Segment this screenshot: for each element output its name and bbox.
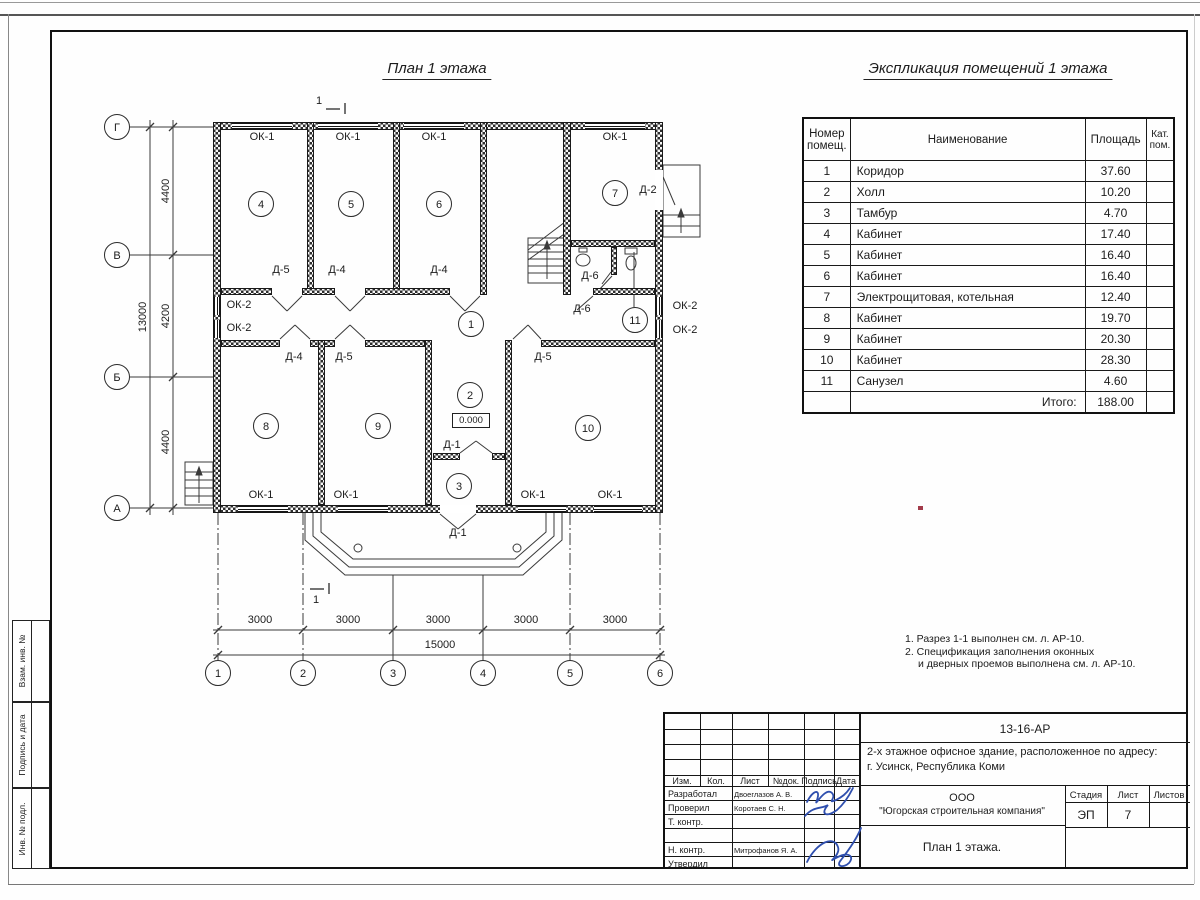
note-line-3: и дверных проемов выполнена см. л. АР-10… (905, 658, 1135, 671)
window-label: ОК-1 (598, 489, 623, 501)
dim-4200: 4200 (160, 304, 172, 328)
role-developed: Разработал (668, 789, 717, 799)
table-row: 6Кабинет16.40 (803, 266, 1174, 287)
notes: 1. Разрез 1-1 выполнен см. л. АР-10. 2. … (905, 633, 1135, 671)
room-number-6: 6 (426, 191, 452, 217)
window-ok1 (338, 505, 388, 513)
stair-exterior-left (185, 462, 213, 505)
wall-hall-room10 (505, 340, 512, 505)
wall-corridor-top (365, 288, 450, 295)
wall-tambour (433, 453, 460, 460)
door-label: Д-6 (581, 270, 598, 282)
window-ok1 (585, 122, 645, 130)
axis-number-1: 1 (205, 660, 231, 686)
note-line-1: 1. Разрез 1-1 выполнен см. л. АР-10. (905, 633, 1135, 646)
dim-4400: 4400 (160, 430, 172, 454)
dim-3000: 3000 (603, 614, 627, 626)
wall-corridor-bottom (221, 340, 280, 347)
window-ok1 (404, 122, 464, 130)
col-list: Лист (740, 776, 760, 786)
window-label: ОК-1 (603, 131, 628, 143)
role-ncontr: Н. контр. (668, 845, 705, 855)
wall-wc-divider (611, 247, 617, 275)
wall-room6-hall (480, 122, 487, 295)
entrance-porch (305, 513, 562, 575)
company-line-2: "Югорская строительная компания" (879, 806, 1045, 817)
room-number-7: 7 (602, 180, 628, 206)
wall-exterior-left (213, 122, 221, 513)
axis-letter-g: Г (104, 114, 130, 140)
wall-stair-room7 (563, 122, 571, 295)
table-header-row: Номер помещ. Наименование Площадь Кат. п… (803, 118, 1174, 161)
dim-3000: 3000 (336, 614, 360, 626)
stair-interior (528, 222, 567, 283)
sheet-value: 7 (1125, 808, 1132, 822)
window-label: ОК-1 (250, 131, 275, 143)
window-label: ОК-1 (336, 131, 361, 143)
wall-room4-5 (307, 122, 314, 295)
stage-value: ЭП (1077, 808, 1094, 822)
total-label: Итого: (850, 392, 1085, 414)
doc-number: 13-16-АР (1000, 722, 1051, 736)
window-ok2 (213, 297, 221, 315)
wall-corridor-top (302, 288, 335, 295)
door-label: Д-4 (430, 264, 447, 276)
role-tcontr: Т. контр. (668, 817, 703, 827)
axis-letter-b: Б (104, 364, 130, 390)
door-label: Д-5 (272, 264, 289, 276)
wall-tambour (492, 453, 505, 460)
dim-3000: 3000 (248, 614, 272, 626)
window-ok2 (213, 320, 221, 338)
header-name: Наименование (850, 118, 1085, 161)
wall-room8-9 (318, 340, 325, 505)
wall-corridor-bottom (365, 340, 425, 347)
table-total-row: Итого: 188.00 (803, 392, 1174, 414)
window-label: ОК-1 (422, 131, 447, 143)
axis-letter-a: А (104, 495, 130, 521)
signature-developed (807, 788, 850, 802)
name-checked: Коротаев С. Н. (734, 804, 786, 813)
table-row: 7Электрощитовая, котельная12.40 (803, 287, 1174, 308)
table-row: 11Санузел4.60 (803, 371, 1174, 392)
table-row: 1Коридор37.60 (803, 161, 1174, 182)
room-number-8: 8 (253, 413, 279, 439)
door-label: Д-4 (328, 264, 345, 276)
header-cat: Кат. пом. (1146, 118, 1174, 161)
elevation-mark: 0.000 (452, 413, 490, 428)
wall-wc-top (571, 240, 655, 247)
table-row: 10Кабинет28.30 (803, 350, 1174, 371)
table-row: 9Кабинет20.30 (803, 329, 1174, 350)
window-ok1 (518, 505, 566, 513)
door-label: Д-5 (335, 351, 352, 363)
title-block: Изм. Кол. Лист №док. Подпись Дата Разраб… (663, 712, 1188, 869)
room-number-9: 9 (365, 413, 391, 439)
door-label: Д-1 (443, 439, 460, 451)
door-label: Д-1 (449, 527, 466, 539)
table-row: 2Холл10.20 (803, 182, 1174, 203)
axis-number-2: 2 (290, 660, 316, 686)
explication-table: Номер помещ. Наименование Площадь Кат. п… (802, 117, 1175, 414)
door-label: Д-2 (639, 184, 656, 196)
window-ok1 (232, 122, 292, 130)
room-number-1: 1 (458, 311, 484, 337)
door-label: Д-5 (534, 351, 551, 363)
sheets-label: Листов (1154, 790, 1185, 801)
scan-speck (918, 506, 923, 510)
table-row: 5Кабинет16.40 (803, 245, 1174, 266)
room-number-11: 11 (622, 307, 648, 333)
room-number-2: 2 (457, 382, 483, 408)
window-ok1 (238, 505, 288, 513)
table-row: 4Кабинет17.40 (803, 224, 1174, 245)
col-kol: Кол. (707, 776, 725, 786)
axis-number-4: 4 (470, 660, 496, 686)
drawing-sheet: { "plan": { "title": "План 1 этажа", "la… (0, 0, 1200, 900)
room-number-4: 4 (248, 191, 274, 217)
col-izm: Изм. (672, 776, 691, 786)
signatures (795, 774, 865, 871)
sheet-label: Лист (1118, 790, 1139, 801)
sink-icon (576, 248, 590, 266)
window-ok1 (594, 505, 642, 513)
window-label: ОК-2 (227, 299, 252, 311)
room-number-10: 10 (575, 415, 601, 441)
window-ok2 (655, 320, 663, 338)
header-area: Площадь (1085, 118, 1146, 161)
dim-3000: 3000 (426, 614, 450, 626)
window-ok1 (318, 122, 378, 130)
axis-number-3: 3 (380, 660, 406, 686)
name-ncontr: Митрофанов Я. А. (734, 846, 798, 855)
note-line-2: 2. Спецификация заполнения оконных (905, 646, 1135, 659)
door-label: Д-6 (573, 303, 590, 315)
dim-3000: 3000 (514, 614, 538, 626)
window-label: ОК-1 (334, 489, 359, 501)
door-opening-entrance (440, 505, 476, 513)
window-label: ОК-2 (227, 322, 252, 334)
role-checked: Проверил (668, 803, 709, 813)
room-number-3: 3 (446, 473, 472, 499)
porch-column (354, 544, 362, 552)
window-label: ОК-1 (521, 489, 546, 501)
wall-corridor-top (221, 288, 272, 295)
axis-letter-v: В (104, 242, 130, 268)
porch-column (513, 544, 521, 552)
project-line-2: г. Усинск, Республика Коми (867, 761, 1005, 773)
signature-ncontr (807, 828, 861, 866)
toilet-icon (625, 248, 637, 270)
axis-number-5: 5 (557, 660, 583, 686)
wall-wc-bottom (593, 288, 655, 295)
stage-label: Стадия (1070, 790, 1102, 801)
header-num: Номер помещ. (803, 118, 850, 161)
room-number-5: 5 (338, 191, 364, 217)
dim-15000: 15000 (425, 639, 456, 651)
dim-13000: 13000 (137, 302, 149, 333)
total-area: 188.00 (1085, 392, 1146, 414)
window-label: ОК-2 (673, 300, 698, 312)
name-developed: Двоеглазов А. В. (734, 790, 792, 799)
dim-4400: 4400 (160, 179, 172, 203)
role-approved: Утвердил (668, 859, 708, 869)
wall-room5-6 (393, 122, 400, 295)
section-mark-top: 1 (316, 95, 322, 107)
door-label: Д-4 (285, 351, 302, 363)
table-row: 3Тамбур4.70 (803, 203, 1174, 224)
stair-landing-right (663, 165, 700, 237)
wall-room9-hall (425, 340, 432, 505)
window-ok2 (655, 297, 663, 315)
window-label: ОК-2 (673, 324, 698, 336)
wall-room10-top (541, 340, 655, 347)
sheet-title: План 1 этажа. (923, 840, 1001, 854)
section-mark-bottom: 1 (313, 594, 319, 606)
axis-number-6: 6 (647, 660, 673, 686)
project-line-1: 2-х этажное офисное здание, расположенно… (867, 746, 1157, 758)
table-row: 8Кабинет19.70 (803, 308, 1174, 329)
company-line-1: ООО (949, 792, 975, 804)
window-label: ОК-1 (249, 489, 274, 501)
